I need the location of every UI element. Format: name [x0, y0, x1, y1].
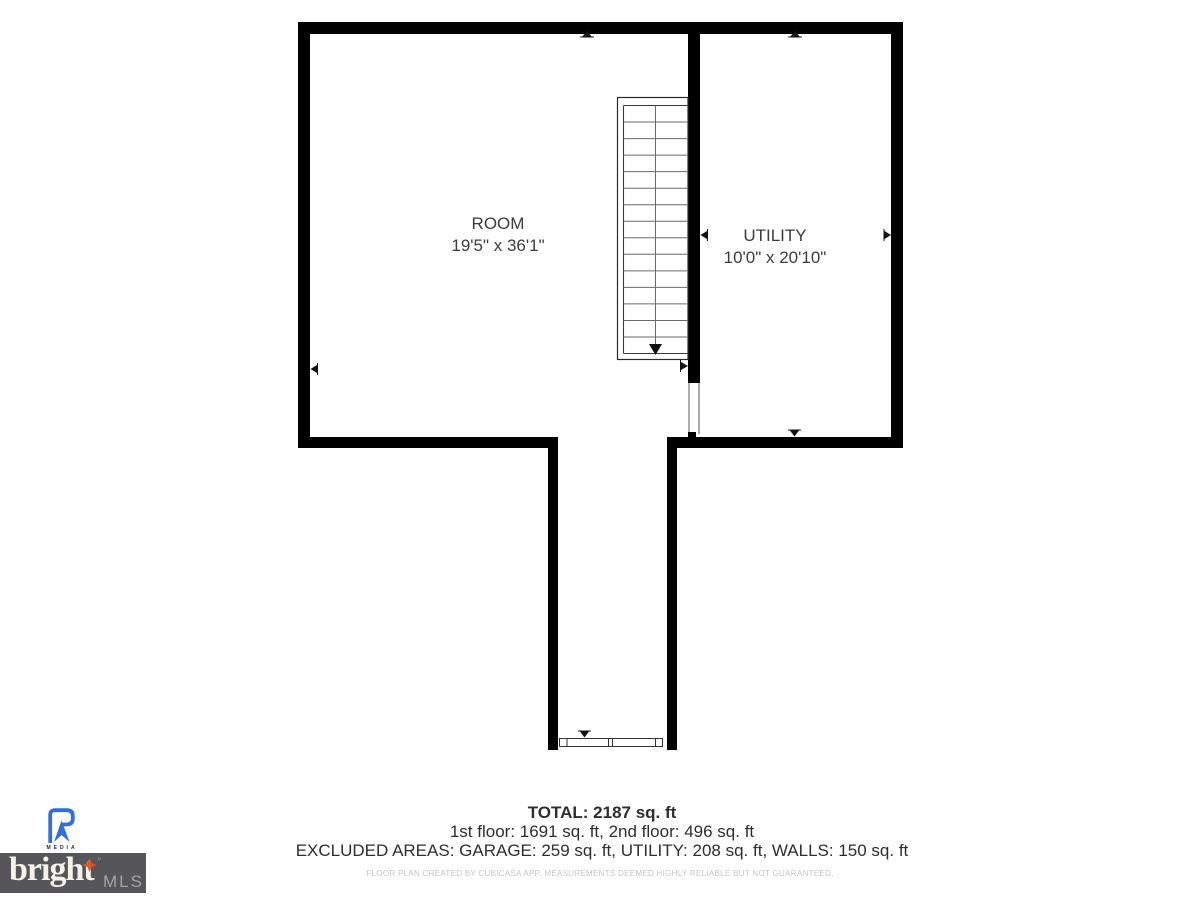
- mls-wordmark: MLS: [103, 872, 144, 892]
- floors-area-line: 1st floor: 1691 sq. ft, 2nd floor: 496 s…: [2, 823, 1200, 842]
- wall-bottom-left: [298, 437, 558, 448]
- bright-wordmark: bright: [9, 850, 94, 890]
- area-summary: TOTAL: 2187 sq. ft 1st floor: 1691 sq. f…: [2, 804, 1200, 860]
- rmedia-logo: MEDIA: [34, 808, 90, 854]
- room-label-room: ROOM 19'5" x 36'1": [388, 213, 608, 256]
- wall-bottom-right: [667, 437, 903, 448]
- utility-name: UTILITY: [665, 225, 885, 246]
- floorplan-page: ROOM 19'5" x 36'1" UTILITY 10'0" x 20'10…: [0, 0, 1200, 900]
- excluded-area-line: EXCLUDED AREAS: GARAGE: 259 sq. ft, UTIL…: [2, 842, 1200, 861]
- room-label-utility: UTILITY 10'0" x 20'10": [665, 225, 885, 268]
- floorplan-canvas: [0, 0, 1200, 900]
- exterior-walls: [298, 22, 903, 750]
- wall-right: [891, 22, 903, 448]
- disclaimer-text: FLOOR PLAN CREATED BY CUBICASA APP. MEAS…: [0, 869, 1200, 878]
- wall-top: [298, 22, 903, 34]
- total-area-line: TOTAL: 2187 sq. ft: [2, 804, 1200, 823]
- measure-arrow-room-left: [311, 363, 318, 375]
- measure-arrow-room-right: [681, 360, 689, 372]
- corridor-wall-right: [667, 437, 677, 750]
- measure-arrow-corridor-bottom: [578, 731, 591, 738]
- door-stub: [688, 432, 696, 437]
- corridor-entry-door: [560, 739, 663, 747]
- bright-trademark-mark: ″: [97, 855, 101, 869]
- room-name: ROOM: [388, 213, 608, 234]
- utility-dimensions: 10'0" x 20'10": [665, 247, 885, 268]
- room-dimensions: 19'5" x 36'1": [388, 235, 608, 256]
- bright-star-icon: [82, 858, 97, 872]
- wall-left: [298, 22, 310, 448]
- measurement-arrows: [311, 31, 892, 738]
- measure-arrow-utility-bottom: [788, 430, 801, 437]
- rmedia-r-icon: [48, 808, 75, 843]
- brightmls-logo: bright ″ MLS: [0, 853, 146, 893]
- measure-arrow-utility-right: [884, 229, 891, 241]
- corridor-wall-left: [548, 437, 558, 750]
